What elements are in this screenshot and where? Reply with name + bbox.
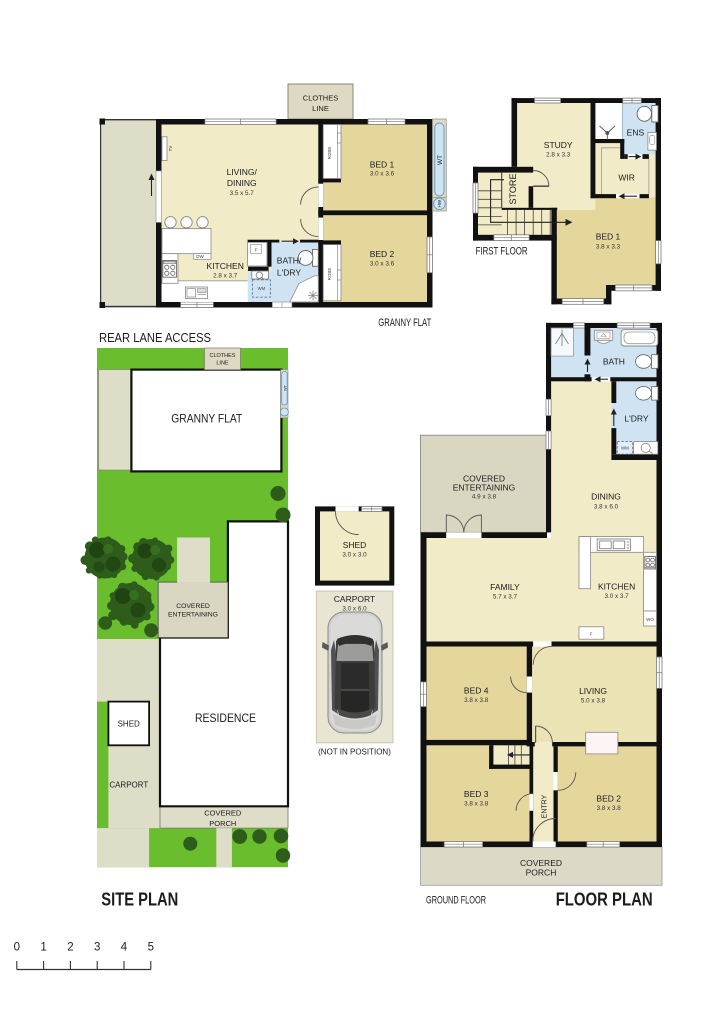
- svg-text:(NOT IN POSITION): (NOT IN POSITION): [318, 748, 391, 757]
- svg-text:WO: WO: [646, 617, 654, 622]
- svg-text:WT: WT: [282, 384, 287, 391]
- svg-text:5.0 x 3.8: 5.0 x 3.8: [581, 698, 606, 705]
- svg-text:ROBE: ROBE: [327, 147, 332, 160]
- svg-text:2: 2: [67, 942, 73, 954]
- svg-text:ENTERTAINING: ENTERTAINING: [453, 482, 516, 492]
- svg-text:WIR: WIR: [618, 173, 635, 183]
- svg-text:4: 4: [121, 942, 128, 954]
- svg-text:L'DRY: L'DRY: [624, 413, 648, 423]
- svg-text:2.8 x 3.7: 2.8 x 3.7: [213, 273, 238, 280]
- svg-text:3.8 x 6.0: 3.8 x 6.0: [594, 503, 619, 510]
- svg-text:3.0 x 6.0: 3.0 x 6.0: [342, 606, 367, 613]
- svg-text:3.5 x 5.7: 3.5 x 5.7: [230, 190, 255, 197]
- svg-text:DINING: DINING: [227, 178, 257, 188]
- svg-text:2.8 x 3.3: 2.8 x 3.3: [546, 152, 571, 159]
- svg-text:CARPORT: CARPORT: [109, 781, 148, 790]
- svg-text:BED 1: BED 1: [370, 159, 395, 169]
- svg-text:LIVING: LIVING: [579, 686, 607, 696]
- svg-text:WM: WM: [621, 446, 629, 451]
- svg-text:SHED: SHED: [343, 540, 367, 550]
- svg-text:FAMILY: FAMILY: [490, 582, 520, 592]
- svg-text:CARPORT: CARPORT: [334, 594, 375, 604]
- svg-text:3.0 x 3.7: 3.0 x 3.7: [605, 593, 630, 600]
- svg-text:CLOTHES: CLOTHES: [210, 353, 236, 359]
- svg-text:KITCHEN: KITCHEN: [207, 261, 244, 271]
- svg-text:COVERED: COVERED: [520, 858, 562, 868]
- svg-text:5.7 x 3.7: 5.7 x 3.7: [493, 593, 518, 600]
- svg-text:KITCHEN: KITCHEN: [598, 582, 635, 592]
- svg-text:L'DRY: L'DRY: [277, 268, 301, 278]
- svg-text:ROBE: ROBE: [327, 268, 332, 281]
- svg-text:3.8 x 3.8: 3.8 x 3.8: [464, 697, 489, 704]
- svg-text:0: 0: [14, 942, 20, 954]
- svg-text:PORCH: PORCH: [526, 868, 557, 878]
- svg-text:3.0 x 3.6: 3.0 x 3.6: [370, 260, 395, 267]
- svg-text:BATH: BATH: [603, 356, 625, 366]
- svg-text:BATH/: BATH/: [277, 256, 302, 266]
- svg-text:F: F: [590, 632, 593, 637]
- svg-text:BED 1: BED 1: [596, 232, 621, 242]
- svg-text:GROUND FLOOR: GROUND FLOOR: [426, 895, 486, 907]
- svg-text:FIRST FLOOR: FIRST FLOOR: [476, 246, 528, 258]
- svg-text:5: 5: [148, 942, 154, 954]
- svg-text:1: 1: [40, 942, 46, 954]
- svg-text:LINE: LINE: [216, 361, 229, 367]
- svg-text:DW: DW: [196, 254, 204, 259]
- svg-text:PORCH: PORCH: [209, 819, 236, 828]
- svg-text:LIVING/: LIVING/: [227, 167, 258, 177]
- svg-text:FLOOR PLAN: FLOOR PLAN: [556, 890, 653, 910]
- svg-text:ENTERTAINING: ENTERTAINING: [168, 612, 218, 619]
- svg-text:STORE: STORE: [508, 174, 519, 205]
- svg-text:ENTRY: ENTRY: [542, 794, 549, 818]
- svg-text:3.8 x 3.8: 3.8 x 3.8: [597, 805, 622, 812]
- svg-text:GRANNY FLAT: GRANNY FLAT: [378, 317, 431, 329]
- svg-text:BED 2: BED 2: [370, 249, 395, 259]
- svg-text:HW: HW: [437, 199, 442, 207]
- svg-text:REAR LANE ACCESS: REAR LANE ACCESS: [99, 330, 211, 345]
- svg-text:3.8 x 3.8: 3.8 x 3.8: [464, 800, 489, 807]
- svg-text:CLOTHES: CLOTHES: [303, 93, 338, 102]
- svg-text:COVERED: COVERED: [176, 603, 210, 610]
- svg-text:COVERED: COVERED: [204, 809, 242, 818]
- svg-text:BED 3: BED 3: [464, 789, 489, 799]
- svg-text:3.0 x 3.0: 3.0 x 3.0: [342, 552, 367, 559]
- svg-text:4.9 x 3.8: 4.9 x 3.8: [472, 494, 497, 501]
- svg-text:3: 3: [94, 942, 100, 954]
- svg-text:BED 4: BED 4: [464, 686, 489, 696]
- svg-text:F: F: [255, 248, 258, 253]
- svg-text:3.8 x 3.3: 3.8 x 3.3: [596, 243, 621, 250]
- svg-text:3.0 x 3.6: 3.0 x 3.6: [370, 170, 395, 177]
- svg-text:LINE: LINE: [312, 104, 329, 113]
- svg-text:STUDY: STUDY: [544, 140, 573, 150]
- svg-text:RESIDENCE: RESIDENCE: [195, 711, 256, 725]
- svg-text:SITE PLAN: SITE PLAN: [101, 890, 178, 910]
- svg-text:WM: WM: [258, 286, 266, 291]
- svg-text:WT: WT: [437, 155, 444, 165]
- svg-text:TV: TV: [168, 146, 173, 152]
- svg-text:DINING: DINING: [591, 492, 621, 502]
- svg-text:GRANNY FLAT: GRANNY FLAT: [171, 412, 243, 426]
- svg-text:SHED: SHED: [118, 720, 140, 729]
- svg-text:ENS: ENS: [627, 127, 645, 137]
- svg-text:BED 2: BED 2: [596, 793, 621, 803]
